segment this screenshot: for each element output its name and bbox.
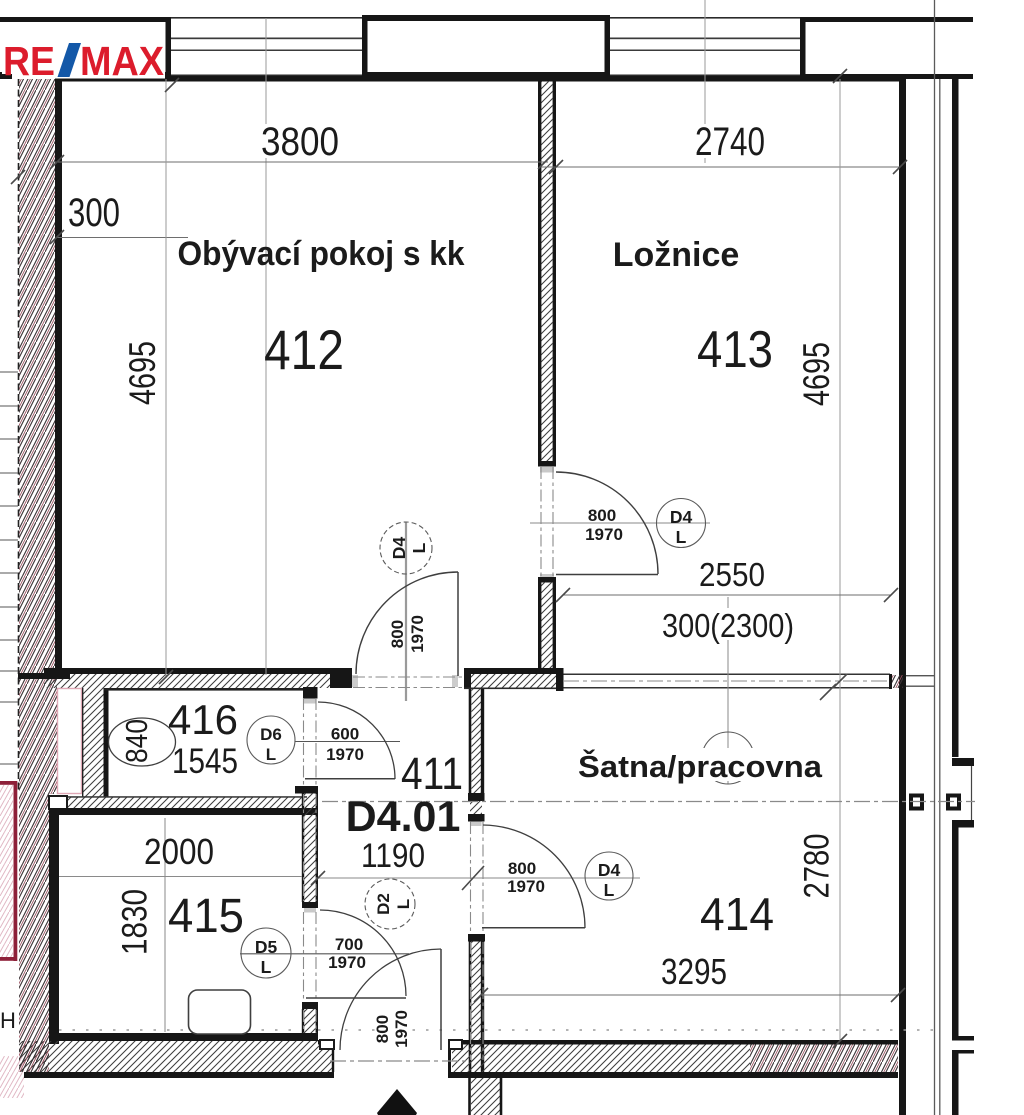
svg-text:1190: 1190 (361, 837, 425, 875)
svg-text:L: L (261, 957, 272, 977)
svg-text:412: 412 (264, 318, 344, 381)
svg-text:D4: D4 (598, 860, 621, 880)
svg-text:800: 800 (388, 620, 407, 648)
svg-text:800: 800 (373, 1015, 392, 1043)
svg-text:D6: D6 (260, 725, 282, 744)
svg-text:D4: D4 (389, 537, 409, 560)
svg-text:700: 700 (335, 935, 363, 954)
svg-text:2000: 2000 (144, 831, 214, 872)
svg-text:D4.01: D4.01 (346, 793, 461, 841)
svg-text:2780: 2780 (798, 834, 837, 899)
svg-text:1970: 1970 (585, 525, 623, 544)
svg-text:415: 415 (168, 890, 244, 943)
svg-text:L: L (266, 745, 276, 764)
svg-text:800: 800 (588, 506, 616, 525)
svg-text:4695: 4695 (122, 341, 163, 405)
svg-text:413: 413 (697, 321, 773, 379)
svg-text:Obývací pokoj s kk: Obývací pokoj s kk (178, 235, 465, 273)
svg-text:300: 300 (68, 191, 120, 235)
svg-text:RE: RE (3, 38, 55, 84)
svg-text:1970: 1970 (408, 615, 427, 653)
svg-text:1970: 1970 (507, 877, 545, 896)
svg-text:1970: 1970 (328, 953, 366, 972)
svg-text:D4: D4 (670, 507, 693, 527)
svg-text:600: 600 (331, 725, 359, 744)
svg-text:Ložnice: Ložnice (613, 236, 740, 274)
svg-text:H: H (0, 1008, 16, 1033)
svg-text:4695: 4695 (796, 342, 837, 406)
svg-text:MAX: MAX (80, 38, 164, 84)
svg-text:D5: D5 (255, 937, 278, 957)
svg-text:L: L (676, 527, 687, 547)
svg-text:840: 840 (119, 719, 154, 763)
svg-text:L: L (409, 542, 429, 553)
svg-text:Šatna/pracovna: Šatna/pracovna (578, 748, 823, 784)
svg-text:2740: 2740 (695, 120, 765, 164)
svg-text:414: 414 (700, 888, 774, 940)
svg-text:300(2300): 300(2300) (662, 607, 794, 644)
svg-text:800: 800 (508, 859, 536, 878)
svg-text:416: 416 (168, 696, 238, 743)
svg-text:1545: 1545 (172, 742, 238, 781)
svg-text:L: L (604, 880, 615, 900)
svg-text:411: 411 (401, 748, 463, 799)
svg-text:3800: 3800 (261, 120, 339, 164)
svg-text:1970: 1970 (326, 745, 364, 764)
svg-text:3295: 3295 (661, 951, 727, 992)
svg-text:1830: 1830 (116, 889, 155, 955)
svg-text:D2: D2 (374, 893, 393, 915)
svg-text:L: L (394, 899, 413, 909)
svg-text:2550: 2550 (699, 556, 765, 593)
svg-text:1970: 1970 (392, 1010, 411, 1048)
